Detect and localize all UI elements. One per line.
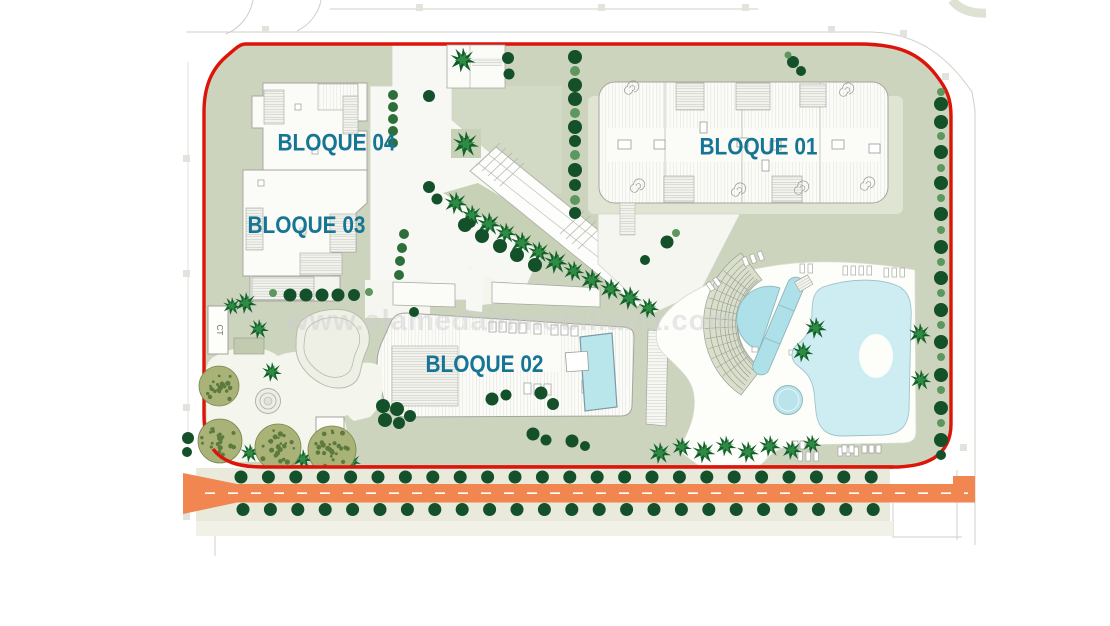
svg-text:BLOQUE 03: BLOQUE 03: [248, 212, 366, 239]
svg-text:CT: CT: [215, 325, 224, 336]
svg-text:www.alamedainmobiliaria.com: www.alamedainmobiliaria.com: [285, 305, 734, 337]
svg-text:BLOQUE 01: BLOQUE 01: [700, 134, 818, 161]
svg-text:BLOQUE 02: BLOQUE 02: [426, 351, 544, 378]
svg-text:BLOQUE 04: BLOQUE 04: [278, 130, 396, 157]
